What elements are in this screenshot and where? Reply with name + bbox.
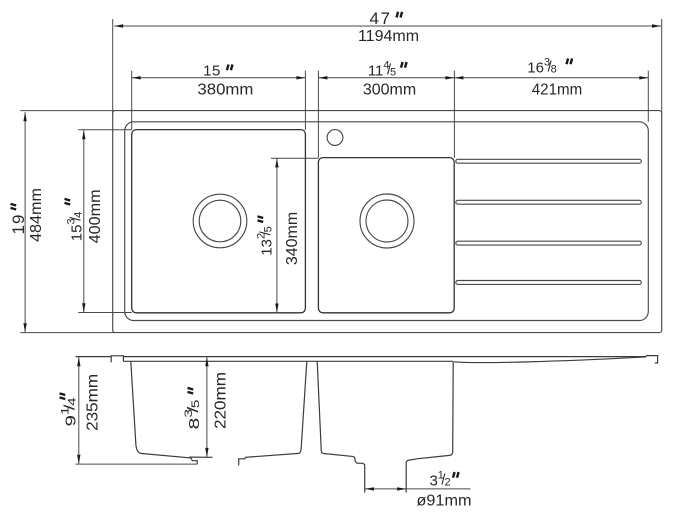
svg-text:19: 19 (9, 214, 28, 235)
svg-text:ø91mm: ø91mm (417, 493, 472, 510)
svg-text:114/5: 114/5 (368, 59, 396, 79)
svg-text:91/4: 91/4 (60, 398, 80, 427)
svg-text:132/5: 132/5 (256, 226, 276, 255)
svg-text:300mm: 300mm (363, 81, 416, 98)
svg-text:47: 47 (370, 9, 392, 28)
svg-text:163/8: 163/8 (527, 57, 556, 77)
svg-text:400mm: 400mm (87, 189, 104, 243)
svg-text:421mm: 421mm (532, 82, 583, 99)
svg-text:340mm: 340mm (284, 212, 301, 265)
svg-text:380mm: 380mm (197, 82, 253, 99)
svg-text:1194mm: 1194mm (358, 28, 419, 45)
svg-text:31/2: 31/2 (429, 470, 450, 490)
svg-text:484mm: 484mm (28, 188, 45, 242)
svg-text:220mm: 220mm (213, 372, 230, 429)
svg-text:235mm: 235mm (85, 374, 102, 431)
svg-text:15: 15 (203, 62, 221, 79)
svg-text:83/5: 83/5 (183, 400, 203, 430)
svg-text:153/4: 153/4 (66, 212, 86, 241)
